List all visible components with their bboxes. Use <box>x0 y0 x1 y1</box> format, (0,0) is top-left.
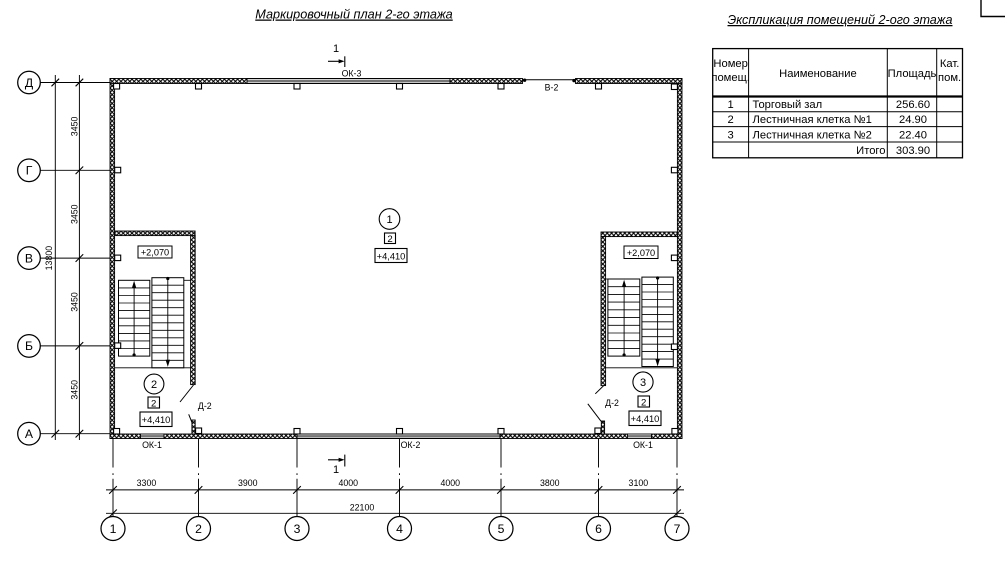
svg-text:4000: 4000 <box>440 478 460 488</box>
svg-text:+2,070: +2,070 <box>141 247 169 257</box>
svg-text:2: 2 <box>728 114 734 126</box>
svg-text:1: 1 <box>333 464 339 476</box>
svg-text:Площадь: Площадь <box>888 68 937 80</box>
svg-text:помещ.: помещ. <box>711 72 750 84</box>
svg-text:3300: 3300 <box>137 478 157 488</box>
svg-text:3450: 3450 <box>70 292 80 312</box>
svg-text:3450: 3450 <box>70 380 80 400</box>
svg-text:3: 3 <box>640 377 646 389</box>
svg-text:3: 3 <box>728 130 734 142</box>
svg-text:3450: 3450 <box>70 117 80 137</box>
svg-text:+4,410: +4,410 <box>142 415 171 425</box>
svg-text:13800: 13800 <box>44 246 54 271</box>
svg-text:4: 4 <box>396 522 403 536</box>
svg-text:Наименование: Наименование <box>779 68 857 80</box>
svg-text:3450: 3450 <box>70 204 80 224</box>
svg-text:22.40: 22.40 <box>899 130 927 142</box>
svg-text:Маркировочный план 2-го этажа: Маркировочный план 2-го этажа <box>255 8 452 22</box>
svg-text:ОК-3: ОК-3 <box>342 69 362 79</box>
svg-text:5: 5 <box>498 522 505 536</box>
svg-text:3100: 3100 <box>629 478 649 488</box>
svg-text:Лестничная клетка №2: Лестничная клетка №2 <box>753 130 872 142</box>
svg-text:Д-2: Д-2 <box>198 401 212 411</box>
svg-text:Д: Д <box>25 76 34 90</box>
svg-text:Д-2: Д-2 <box>605 398 619 408</box>
svg-text:пом.: пом. <box>938 72 961 84</box>
svg-text:+4,410: +4,410 <box>377 251 406 261</box>
svg-text:2: 2 <box>195 522 202 536</box>
svg-text:3: 3 <box>294 522 301 536</box>
svg-text:Номер: Номер <box>713 58 747 70</box>
svg-text:2: 2 <box>387 234 392 245</box>
svg-text:22100: 22100 <box>350 502 375 512</box>
svg-text:Экспликация помещений 2-ого эт: Экспликация помещений 2-ого этажа <box>728 13 953 27</box>
svg-text:2: 2 <box>151 398 156 409</box>
svg-text:В-2: В-2 <box>545 83 559 93</box>
svg-text:2: 2 <box>151 379 157 391</box>
svg-text:3800: 3800 <box>540 478 560 488</box>
svg-text:Торговый зал: Торговый зал <box>753 99 823 111</box>
svg-text:256.60: 256.60 <box>896 99 930 111</box>
svg-text:Б: Б <box>25 339 33 353</box>
svg-text:ОК-1: ОК-1 <box>142 440 162 450</box>
svg-text:1: 1 <box>728 99 734 111</box>
svg-text:А: А <box>25 427 34 441</box>
svg-text:4000: 4000 <box>338 478 358 488</box>
svg-text:1: 1 <box>110 522 117 536</box>
svg-text:+4,410: +4,410 <box>631 414 660 424</box>
svg-text:Кат.: Кат. <box>940 58 959 70</box>
svg-text:6: 6 <box>595 522 602 536</box>
svg-text:Г: Г <box>26 164 33 178</box>
svg-text:7: 7 <box>674 522 681 536</box>
svg-text:1: 1 <box>386 214 392 226</box>
svg-text:+2,070: +2,070 <box>627 248 655 258</box>
svg-text:2: 2 <box>641 397 646 408</box>
svg-text:1: 1 <box>333 43 339 55</box>
svg-text:Лестничная клетка №1: Лестничная клетка №1 <box>753 114 872 126</box>
svg-text:303.90: 303.90 <box>896 145 930 157</box>
svg-text:ОК-2: ОК-2 <box>401 440 421 450</box>
svg-text:24.90: 24.90 <box>899 114 927 126</box>
svg-text:Итого: Итого <box>856 145 885 157</box>
svg-text:В: В <box>25 251 33 265</box>
svg-text:ОК-1: ОК-1 <box>633 440 653 450</box>
svg-text:3900: 3900 <box>238 478 258 488</box>
